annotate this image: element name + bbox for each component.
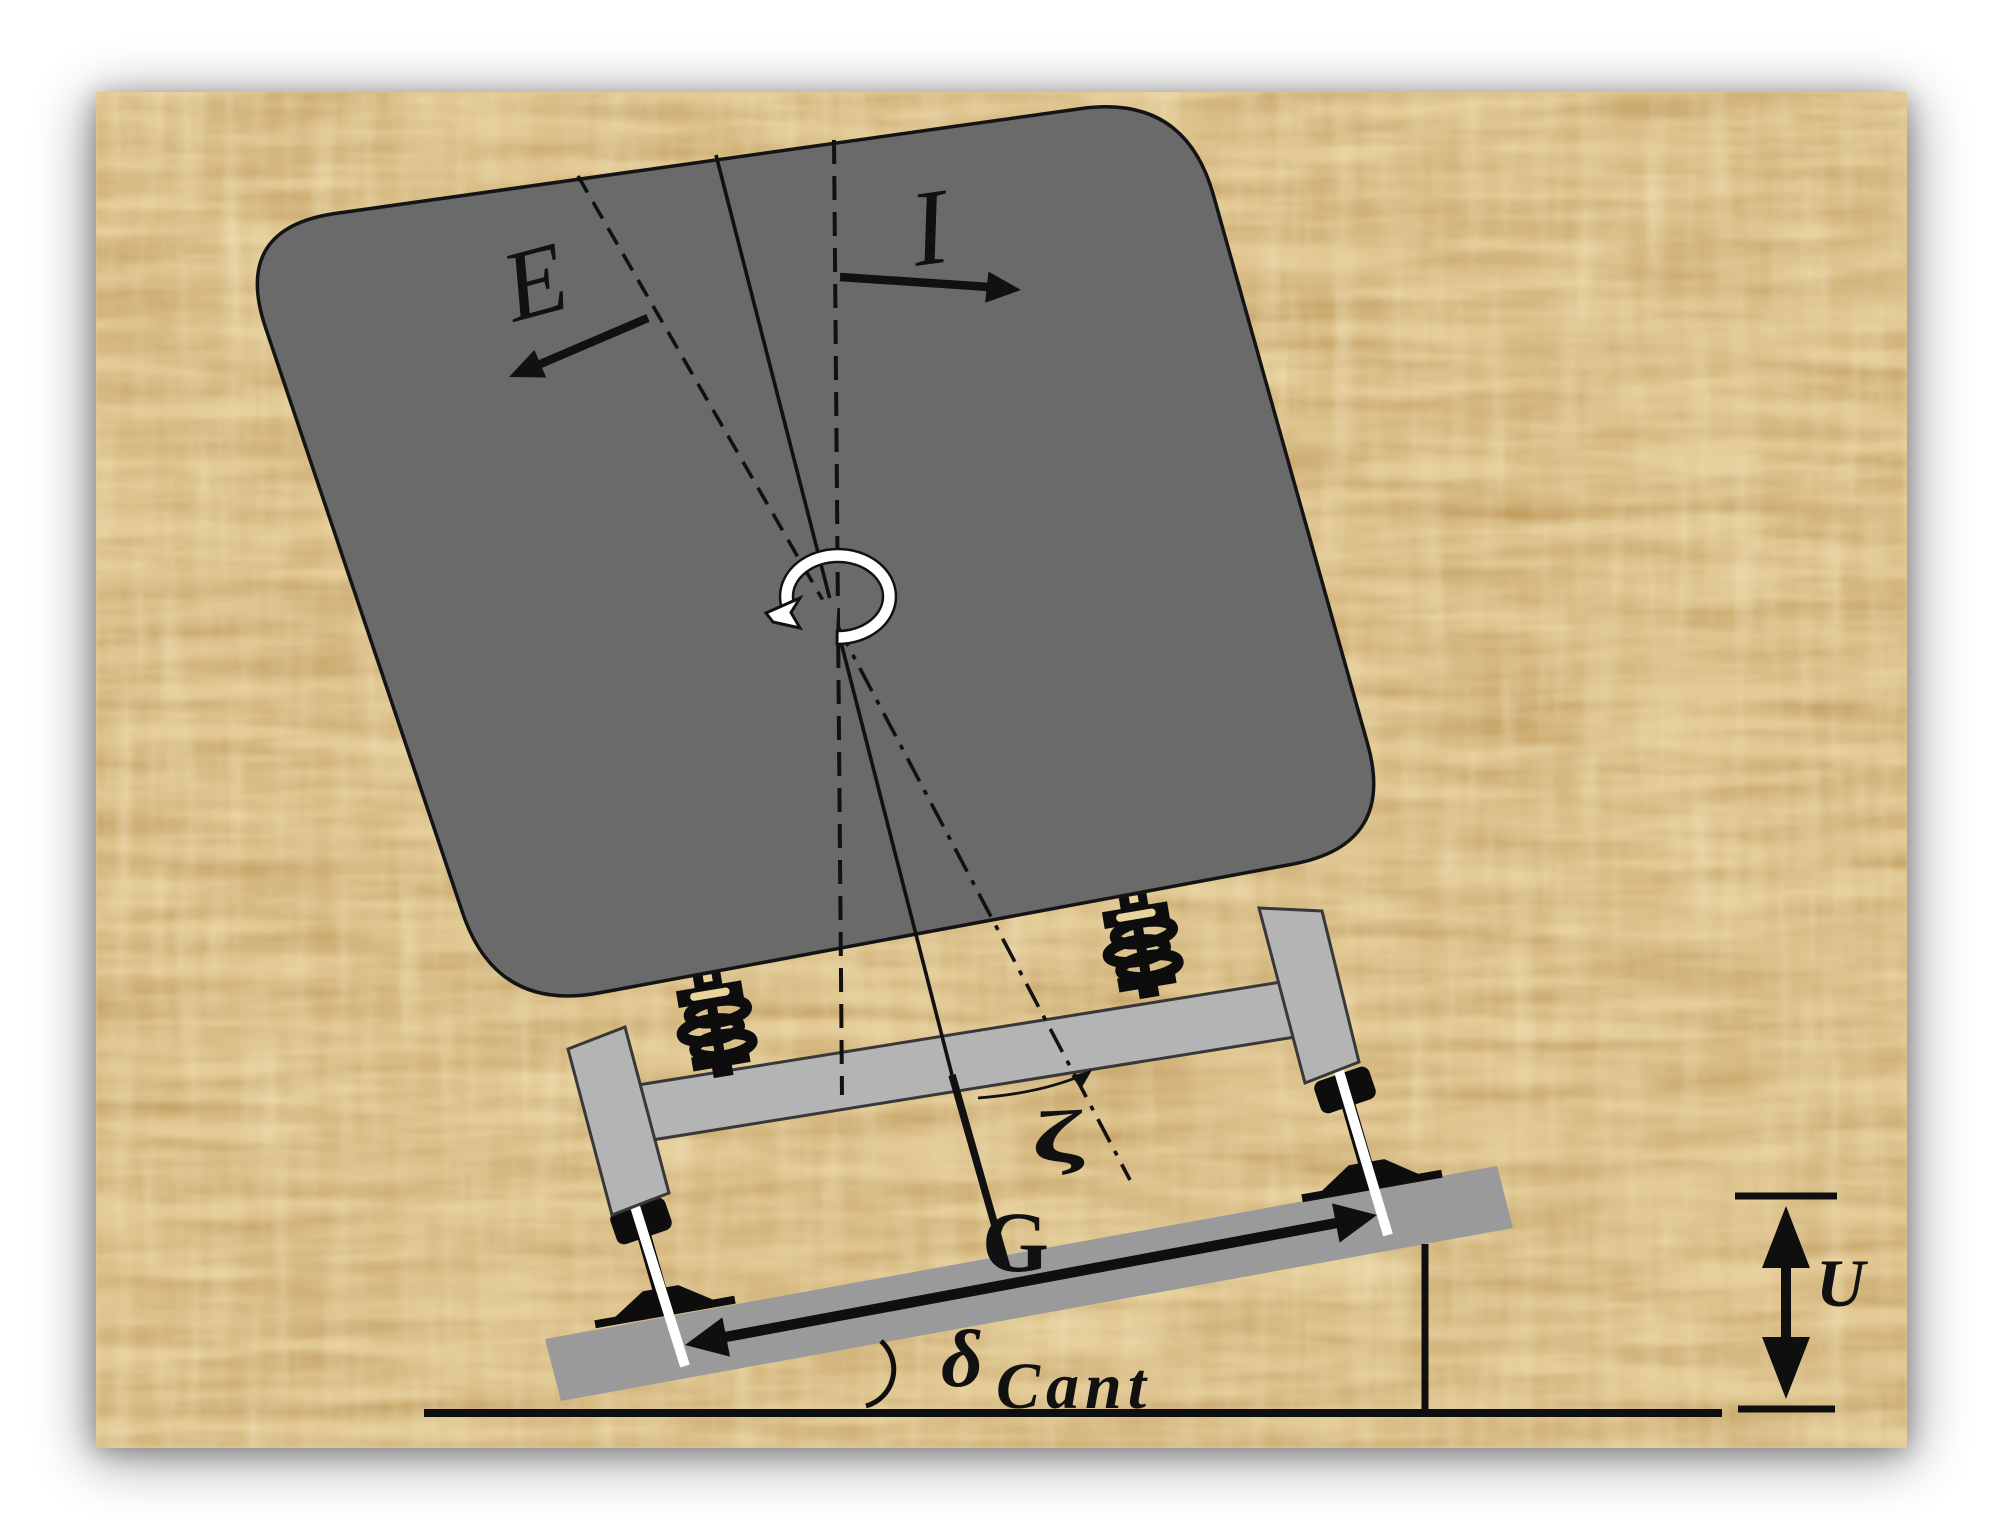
- svg-text:Cant: Cant: [996, 1350, 1152, 1423]
- svg-text:δ: δ: [941, 1313, 983, 1404]
- svg-text:U: U: [1816, 1245, 1869, 1321]
- svg-text:ζ: ζ: [1031, 1096, 1084, 1177]
- svg-text:G: G: [982, 1194, 1049, 1290]
